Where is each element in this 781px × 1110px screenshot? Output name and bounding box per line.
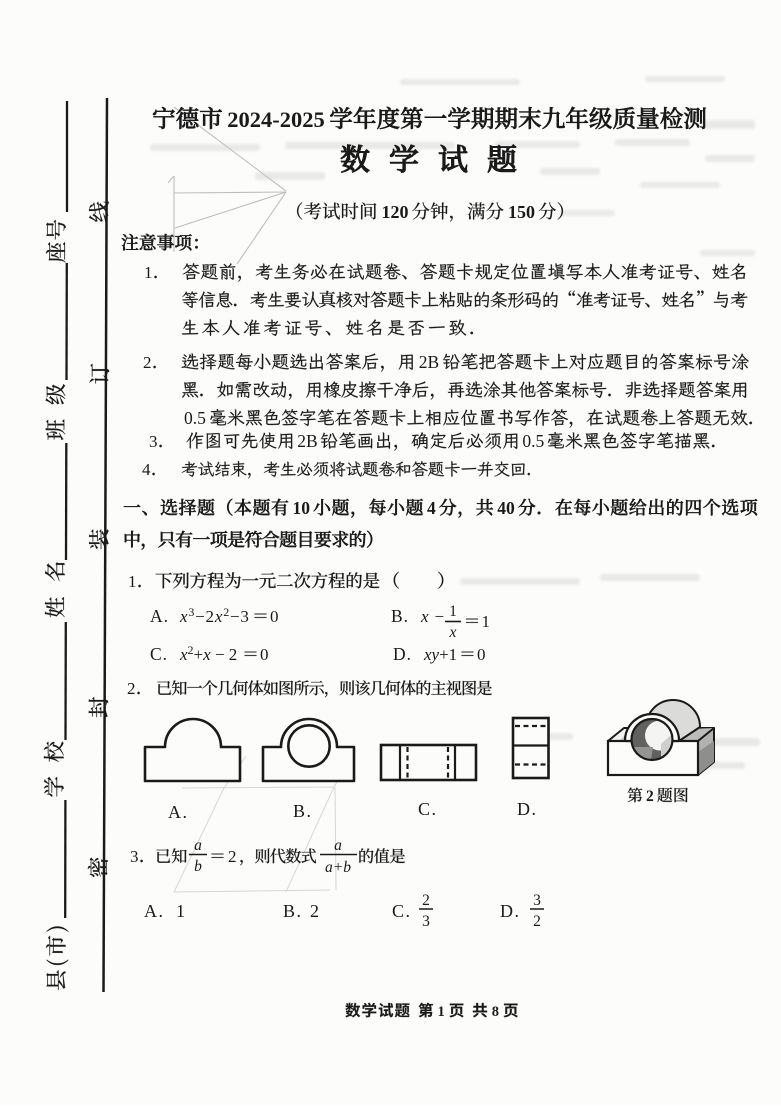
svg-text:0.5: 0.5	[522, 431, 544, 451]
svg-text:x: x	[449, 624, 457, 641]
svg-text:D.: D.	[393, 644, 412, 664]
svg-text:b: b	[194, 858, 202, 875]
svg-text:3: 3	[422, 913, 430, 930]
svg-text:0: 0	[477, 645, 486, 664]
svg-text:8: 8	[492, 1004, 499, 1020]
svg-text:1: 1	[438, 1004, 445, 1020]
svg-text:x: x	[420, 607, 429, 626]
svg-text:A.: A.	[150, 606, 169, 626]
svg-text:−: −	[435, 607, 445, 626]
svg-text:1: 1	[144, 263, 153, 282]
svg-text:D.: D.	[500, 901, 521, 921]
svg-text:4: 4	[427, 498, 436, 518]
svg-text:2: 2	[422, 892, 430, 909]
svg-text:4: 4	[142, 460, 151, 479]
svg-text:0: 0	[270, 607, 279, 626]
svg-text:3: 3	[533, 892, 541, 909]
svg-text:1: 1	[482, 612, 491, 631]
svg-text:2B: 2B	[419, 352, 439, 372]
svg-text:C.: C.	[150, 644, 168, 664]
svg-text:C.: C.	[418, 799, 438, 819]
svg-text:A.: A.	[144, 901, 165, 921]
svg-text:A.: A.	[168, 802, 189, 822]
svg-text:0: 0	[260, 645, 269, 664]
svg-text:2: 2	[646, 788, 654, 805]
svg-text:1: 1	[128, 572, 137, 591]
svg-text:2: 2	[310, 901, 319, 921]
svg-text:10: 10	[293, 498, 311, 518]
svg-text:1: 1	[449, 603, 457, 620]
svg-text:D.: D.	[517, 799, 538, 819]
svg-text:2: 2	[127, 679, 136, 698]
svg-text:3: 3	[130, 847, 139, 866]
svg-text:2024-2025: 2024-2025	[227, 107, 324, 132]
svg-text:1: 1	[176, 901, 185, 921]
svg-text:3: 3	[149, 432, 158, 451]
svg-text:a: a	[194, 837, 202, 854]
svg-text:a+b: a+b	[325, 859, 351, 876]
svg-text:a: a	[334, 837, 342, 854]
svg-text:2: 2	[228, 847, 237, 866]
svg-text:xy+1: xy+1	[423, 645, 457, 664]
svg-text:2: 2	[533, 913, 541, 930]
svg-text:B.: B.	[391, 606, 409, 626]
svg-text:40: 40	[497, 498, 515, 518]
svg-text:B.: B.	[283, 901, 303, 921]
svg-text:C.: C.	[392, 901, 412, 921]
svg-text:150: 150	[508, 202, 535, 222]
svg-text:120: 120	[382, 202, 409, 222]
svg-text:0.5: 0.5	[184, 408, 206, 428]
svg-text:2: 2	[143, 353, 152, 372]
svg-text:2B: 2B	[297, 431, 317, 451]
svg-text:B.: B.	[293, 801, 313, 821]
